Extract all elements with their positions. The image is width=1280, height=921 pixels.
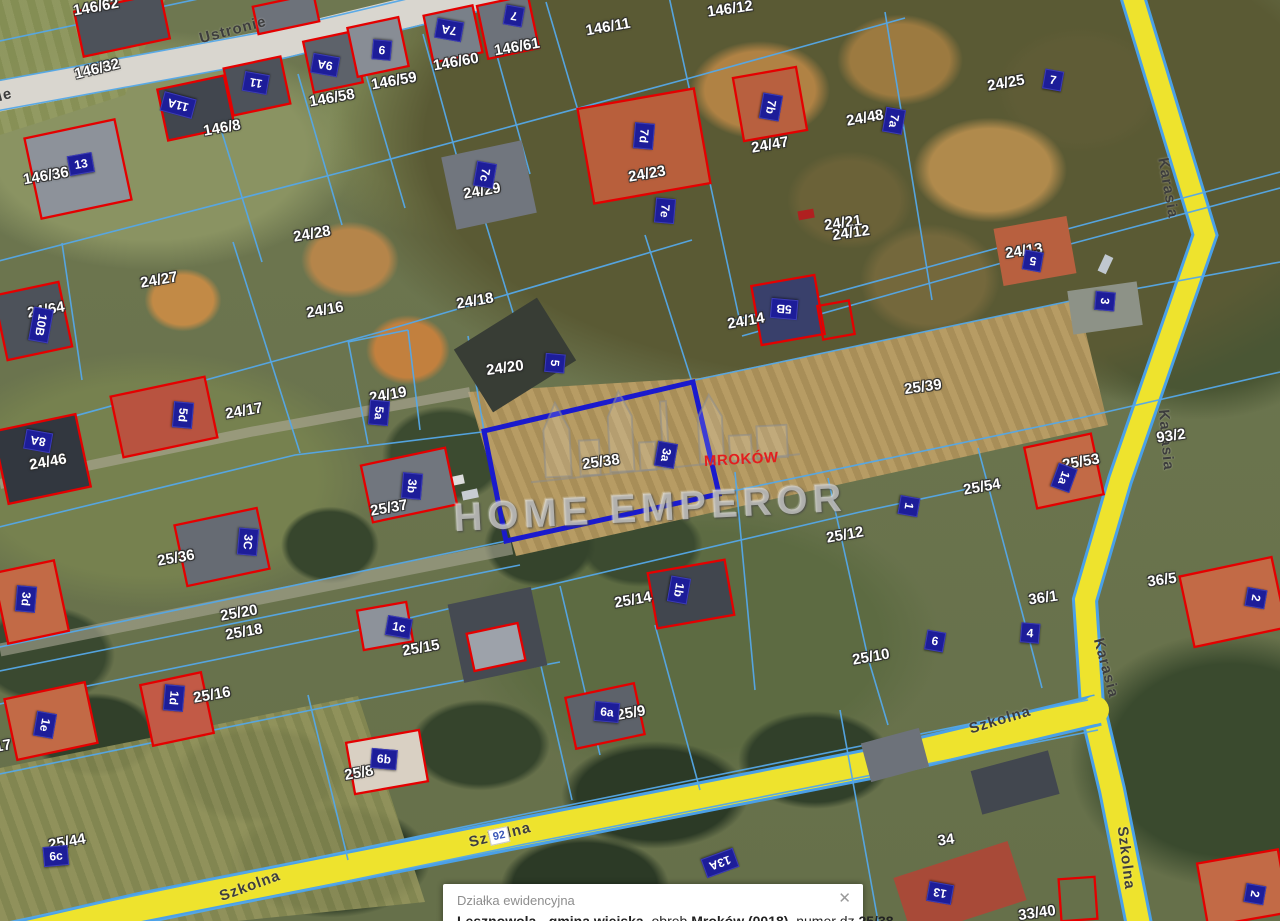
popup-text-segment: , obręb <box>644 913 691 921</box>
building-number-plate: 6a <box>593 701 620 723</box>
popup-parcel-description: Lesznowola - gmina wiejska, obręb Mroków… <box>457 913 849 921</box>
building-number-plate: 7d <box>633 122 655 150</box>
building-number-plate: 3b <box>401 472 423 500</box>
building-number-plate: 5d <box>172 401 194 429</box>
building-number-plate: 5 <box>1022 250 1044 273</box>
building-number-plate: 2 <box>1244 883 1267 905</box>
building-number-plate: 1c <box>385 615 413 639</box>
building-number-plate: 2 <box>1245 587 1268 609</box>
popup-text-segment: 25/38 <box>858 913 893 921</box>
building-number-plate: 3d <box>15 585 37 613</box>
building-number-plate: 7e <box>654 197 676 224</box>
close-icon[interactable]: ✕ <box>838 891 851 906</box>
building-number-plate: 3C <box>237 528 259 557</box>
building-number-plate: 1 <box>898 495 921 517</box>
popup-text-segment: Lesznowola - gmina wiejska <box>457 913 644 921</box>
building-number-plate: 1d <box>163 684 185 712</box>
building-number-plate: 5B <box>770 298 799 320</box>
map-viewport[interactable]: HOME EMPEROR MROKÓW UstronieieKarasiaKar… <box>0 0 1280 921</box>
building-number-plate: 7 <box>1042 69 1064 92</box>
building-number-plate: 7 <box>503 5 525 28</box>
parcel-number-label: 34 <box>937 830 956 849</box>
building-number-plate: 6 <box>924 630 946 653</box>
building-number-plate: 5a <box>368 399 390 426</box>
popup-text-segment: , numer dz. <box>788 913 858 921</box>
building-number-plate: 13 <box>926 881 954 905</box>
popup-title: Działka ewidencyjna <box>457 893 849 908</box>
building-number-plate: 6b <box>370 748 398 770</box>
parcel-info-popup: Działka ewidencyjna ✕ Lesznowola - gmina… <box>443 884 863 921</box>
building-number-plate: 9 <box>372 39 392 61</box>
building-number-plate: 3 <box>1094 291 1116 311</box>
building-number-plate: 6c <box>42 845 69 867</box>
building-number-plate: 11 <box>242 71 270 95</box>
popup-text-segment: Mroków (0018) <box>691 913 788 921</box>
building-number-plate: 5 <box>544 353 566 373</box>
building-number-plate: 4 <box>1020 622 1040 644</box>
